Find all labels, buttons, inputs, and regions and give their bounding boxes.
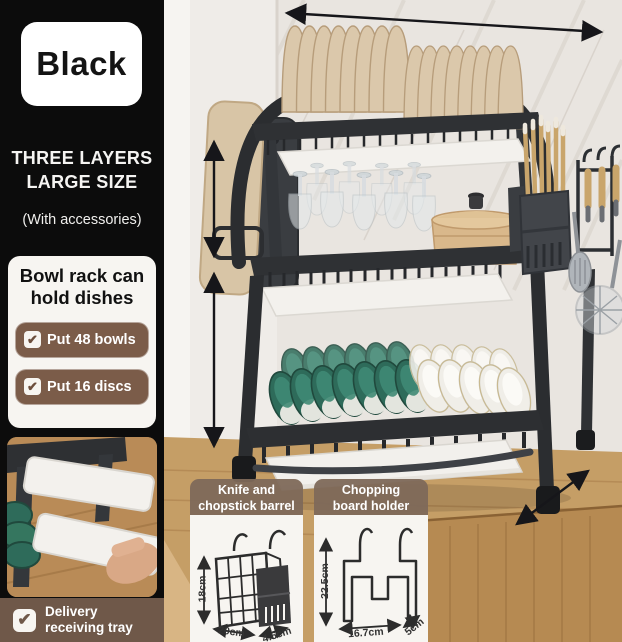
size-title: THREE LAYERS LARGE SIZE: [0, 146, 164, 195]
capacity-badge-label: Put 48 bowls: [47, 332, 136, 348]
callout-diagram: 18cm 20cm 4.6cm: [190, 515, 303, 642]
checkbox-icon: ✔: [24, 331, 41, 348]
size-title-line2: LARGE SIZE: [0, 170, 164, 194]
info-sidebar: Black THREE LAYERS LARGE SIZE (With acce…: [0, 0, 164, 642]
height-measurement: 22.5cm: [319, 563, 331, 599]
delivery-tray-photo: [7, 437, 157, 597]
callout-title: Chopping board holder: [314, 479, 428, 515]
bowl-capacity-card: Bowl rack can hold dishes ✔ Put 48 bowls…: [8, 256, 156, 428]
delivery-tray-text: Delivery receiving tray: [45, 604, 133, 635]
callout-chopping-board-holder: Chopping board holder 22.5cm 16.7cm 5cm: [314, 479, 428, 642]
capacity-badge-label: Put 16 discs: [47, 379, 132, 395]
callout-diagram: 22.5cm 16.7cm 5cm: [314, 515, 428, 642]
height-measurement: 18cm: [196, 575, 208, 602]
capacity-badge-discs: ✔ Put 16 discs: [15, 369, 149, 405]
product-photo: Knife and chopstick barrel: [164, 0, 622, 642]
callout-knife-chopstick-barrel: Knife and chopstick barrel: [190, 479, 303, 642]
product-image: Black THREE LAYERS LARGE SIZE (With acce…: [0, 0, 622, 642]
delivery-tray-label: ✔ Delivery receiving tray: [0, 598, 164, 642]
capacity-badge-bowls: ✔ Put 48 bowls: [15, 322, 149, 358]
width-measurement: 16.7cm: [348, 625, 384, 639]
checkbox-icon: ✔: [13, 609, 36, 632]
delivery-tray-illustration: [7, 437, 157, 597]
accessories-note: (With accessories): [0, 212, 164, 228]
size-title-line1: THREE LAYERS: [0, 146, 164, 170]
bowl-card-title: Bowl rack can hold dishes: [8, 265, 156, 309]
color-swatch: Black: [21, 22, 142, 106]
checkbox-icon: ✔: [24, 378, 41, 395]
color-swatch-label: Black: [36, 45, 127, 83]
callout-title: Knife and chopstick barrel: [190, 479, 303, 515]
